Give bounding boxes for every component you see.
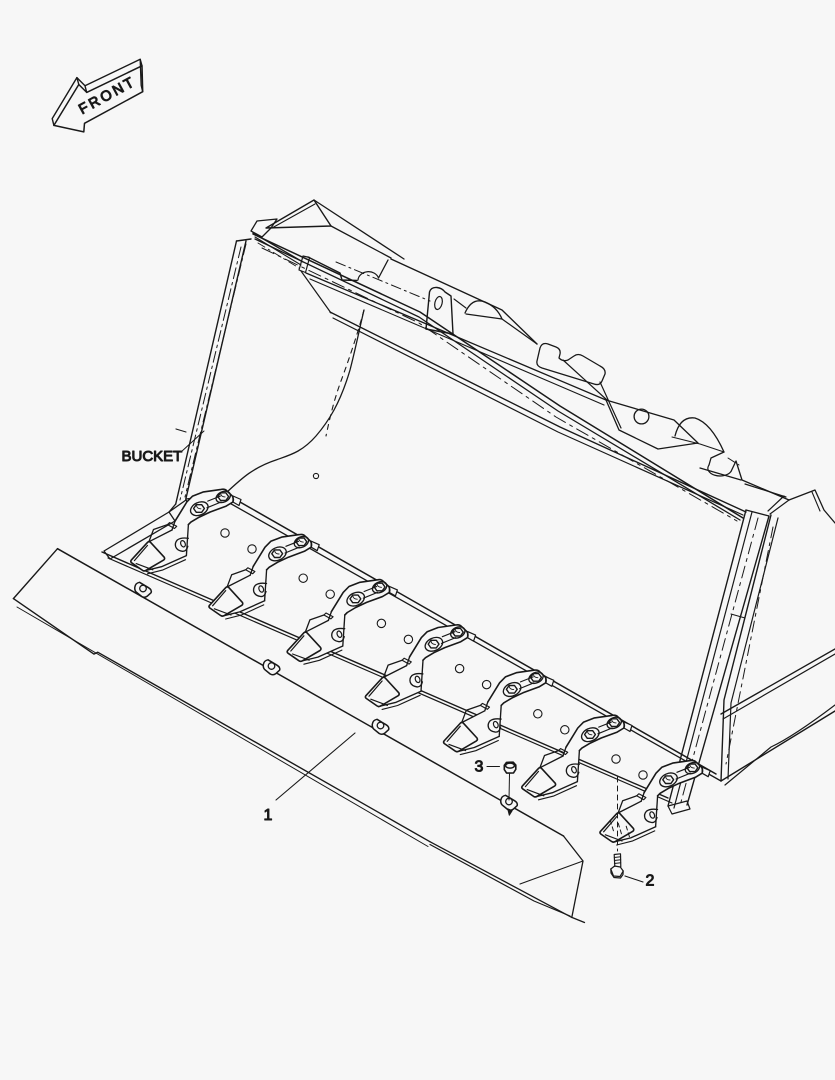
svg-text:3: 3 — [475, 759, 484, 776]
svg-text:1: 1 — [264, 807, 273, 824]
svg-text:2: 2 — [646, 873, 655, 890]
svg-text:BUCKET: BUCKET — [122, 448, 183, 465]
